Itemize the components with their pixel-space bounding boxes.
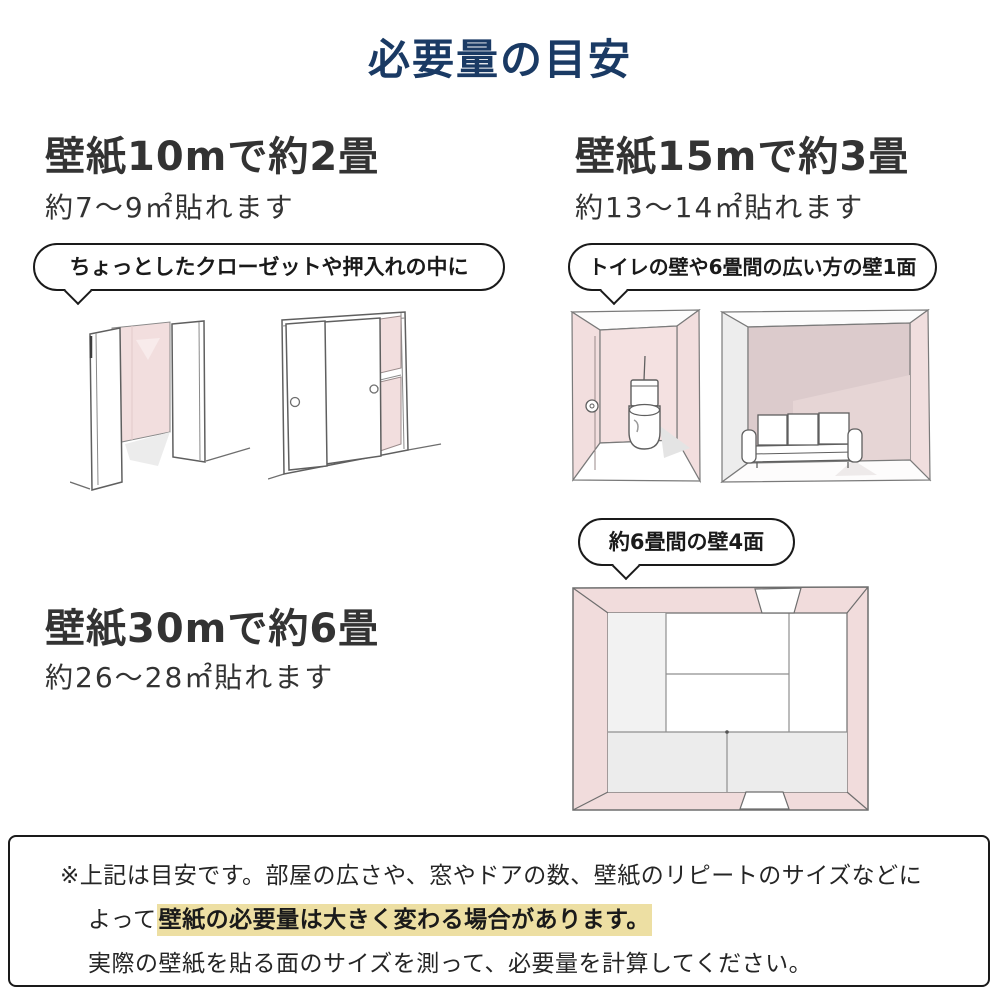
note-line-2: よって壁紙の必要量は大きく変わる場合があります。	[88, 900, 652, 934]
toilet-room-illustration	[568, 300, 708, 500]
note-line-2-prefix: よって	[88, 907, 157, 933]
section-15m-coverage: 約13〜14㎡貼れます	[575, 186, 864, 226]
section-30m-coverage: 約26〜28㎡貼れます	[45, 656, 334, 696]
section-10m-heading: 壁紙10mで約2畳	[45, 124, 379, 182]
bubble-15m: トイレの壁や6畳間の広い方の壁1面	[568, 243, 937, 291]
note-line-1: ※上記は目安です。部屋の広さや、窓やドアの数、壁紙のリピートのサイズなどに	[60, 856, 922, 890]
bubble-15m-label: トイレの壁や6畳間の広い方の壁1面	[589, 255, 917, 279]
bubble-6tatami-label: 約6畳間の壁4面	[609, 530, 764, 554]
section-30m-heading: 壁紙30mで約6畳	[45, 596, 379, 654]
bubble-10m: ちょっとしたクローゼットや押入れの中に	[33, 243, 505, 291]
bubble-6tatami: 約6畳間の壁4面	[578, 518, 795, 566]
note-highlight: 壁紙の必要量は大きく変わる場合があります。	[157, 904, 652, 936]
section-10m-coverage: 約7〜9㎡貼れます	[45, 186, 295, 226]
section-15m-heading: 壁紙15mで約3畳	[575, 124, 909, 182]
note-line-3: 実際の壁紙を貼る面のサイズを測って、必要量を計算してください。	[88, 944, 812, 978]
page-title: 必要量の目安	[0, 26, 1000, 87]
tatami-room-illustration	[570, 585, 870, 813]
closet-open-illustration	[70, 312, 260, 507]
sofa-room-illustration	[715, 303, 945, 495]
bubble-10m-label: ちょっとしたクローゼットや押入れの中に	[70, 255, 469, 279]
closet-sliding-illustration	[268, 298, 443, 513]
